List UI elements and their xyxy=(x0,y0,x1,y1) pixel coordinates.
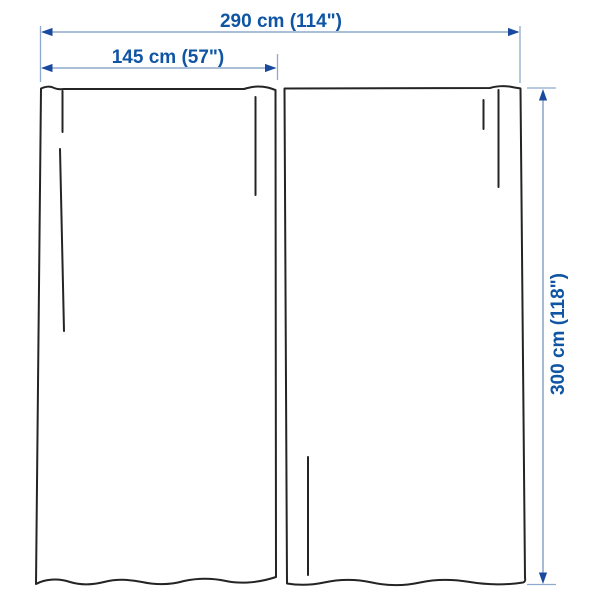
right-curtain-panel xyxy=(285,86,526,585)
panel-width-label: 145 cm (57") xyxy=(112,47,225,68)
arrow-left-icon xyxy=(41,64,53,72)
dimension-diagram: 290 cm (114") 145 cm (57") 300 cm (118") xyxy=(0,0,600,600)
left-curtain-panel xyxy=(36,87,276,585)
right-panel-outline xyxy=(285,86,526,585)
arrow-right-icon xyxy=(265,64,277,72)
diagram-canvas: 290 cm (114") 145 cm (57") 300 cm (118") xyxy=(0,0,600,600)
left-panel-outline xyxy=(36,87,276,585)
dimension-panel-width: 145 cm (57") xyxy=(41,47,278,80)
arrow-right-icon xyxy=(508,28,520,36)
dimension-height: 300 cm (118") xyxy=(527,88,569,585)
arrow-left-icon xyxy=(41,28,53,36)
left-panel-fold-long xyxy=(60,149,64,331)
arrow-down-icon xyxy=(539,573,547,585)
arrow-up-icon xyxy=(539,89,547,101)
total-width-label: 290 cm (114") xyxy=(220,11,342,32)
panel-height-label: 300 cm (118") xyxy=(548,273,569,395)
